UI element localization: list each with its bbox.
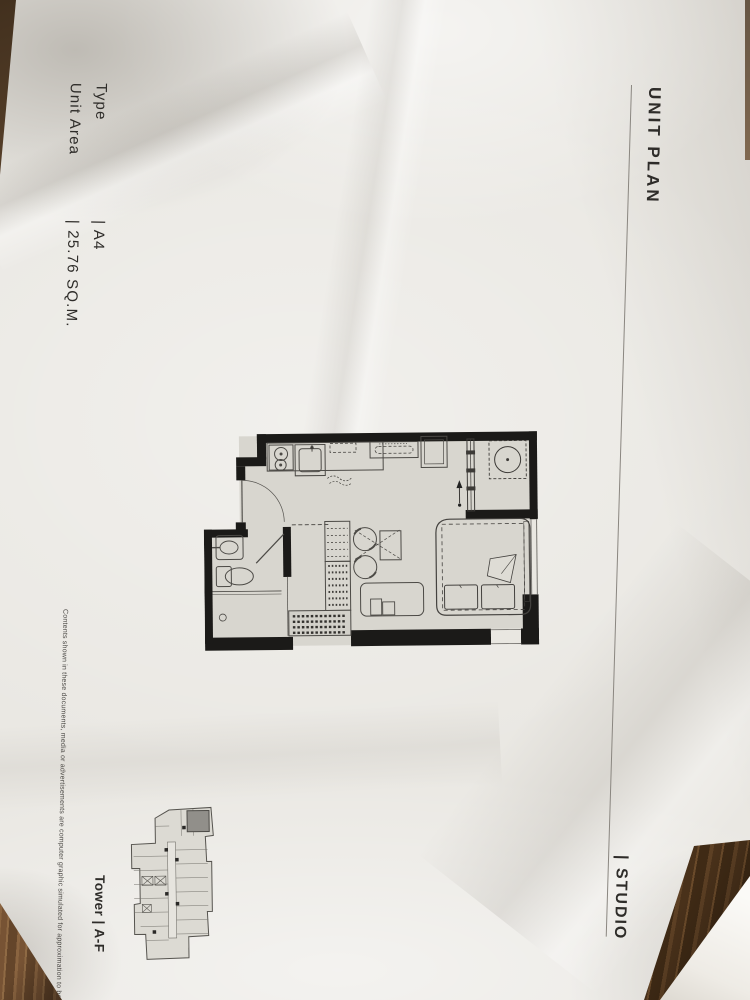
- unit-specs: Type| A4 Unit Area| 25.76 SQ.M.: [58, 83, 114, 329]
- floor-plan-svg: [203, 424, 543, 662]
- category-label: | STUDIO: [610, 855, 630, 941]
- floor-plan: [203, 424, 543, 662]
- tower-label: Tower | A-F: [92, 875, 108, 953]
- highlighted-unit: [187, 810, 209, 831]
- spec-row-area: Unit Area| 25.76 SQ.M.: [58, 83, 88, 328]
- photo-frame: UNIT PLAN | STUDIO Type| A4 Unit Area| 2…: [0, 0, 750, 1000]
- spec-row-type: Type| A4: [84, 83, 114, 328]
- wood-floor-right-edge: [745, 0, 750, 160]
- shoe-cabinet: [289, 610, 351, 636]
- spec-value: | A4: [90, 220, 108, 251]
- key-plan: [125, 805, 219, 964]
- spec-value: | 25.76 SQ.M.: [63, 220, 82, 328]
- page-title: UNIT PLAN: [642, 87, 664, 205]
- key-plan-svg: [125, 805, 219, 964]
- spec-label: Unit Area: [60, 83, 88, 220]
- spec-label: Type: [86, 83, 114, 220]
